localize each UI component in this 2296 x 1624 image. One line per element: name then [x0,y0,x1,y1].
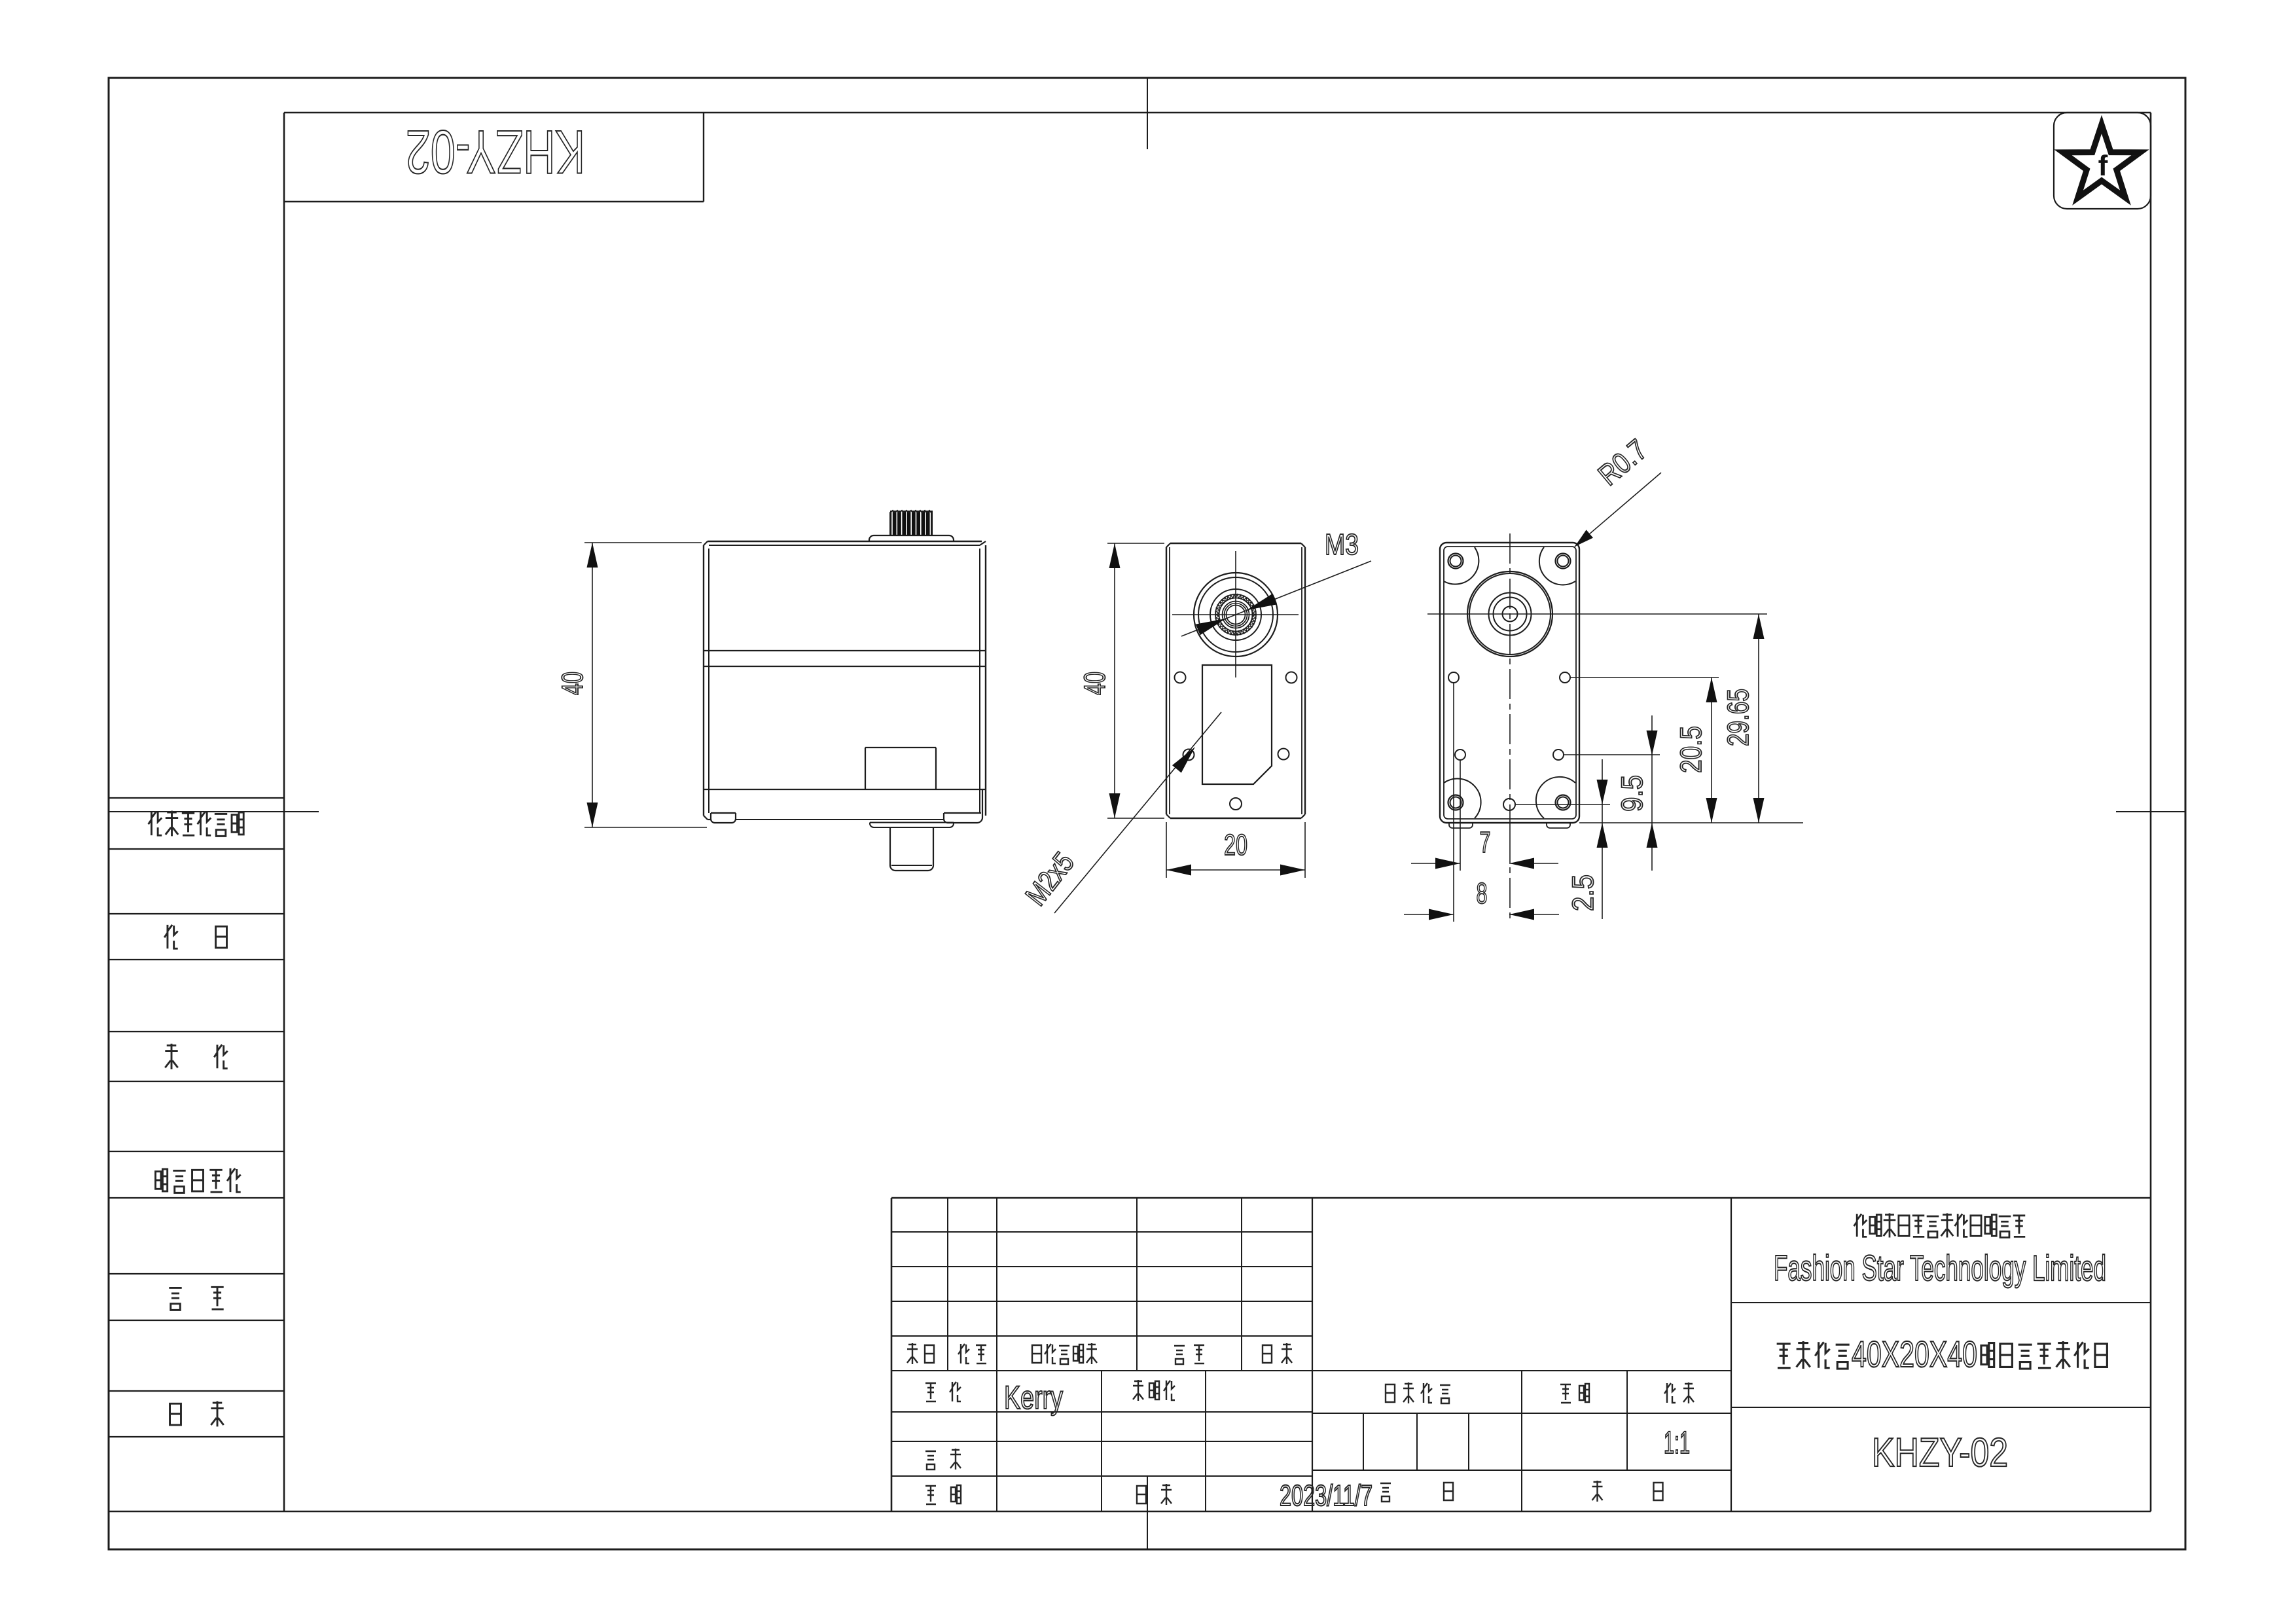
svg-text:40X20X40: 40X20X40 [1852,1333,1977,1375]
svg-text:Fashion Star Technology Limite: Fashion Star Technology Limited [1774,1248,2106,1288]
svg-text:1:1: 1:1 [1664,1426,1690,1460]
svg-text:8: 8 [1476,876,1487,910]
svg-text:7: 7 [1479,825,1490,859]
svg-text:20.5: 20.5 [1674,726,1708,773]
svg-text:40: 40 [556,672,589,695]
svg-text:f: f [2098,150,2108,182]
svg-text:20: 20 [1224,828,1247,861]
svg-text:M3: M3 [1325,528,1359,561]
svg-text:2.5: 2.5 [1566,875,1600,911]
svg-text:29.65: 29.65 [1721,689,1755,746]
svg-text:KHZY-02: KHZY-02 [1872,1430,2008,1475]
svg-text:9.5: 9.5 [1615,775,1649,812]
svg-text:2023/11/7: 2023/11/7 [1280,1479,1372,1512]
svg-text:40: 40 [1078,672,1111,695]
svg-text:Kerry: Kerry [1004,1379,1063,1416]
svg-text:KHZY-02: KHZY-02 [406,118,585,187]
